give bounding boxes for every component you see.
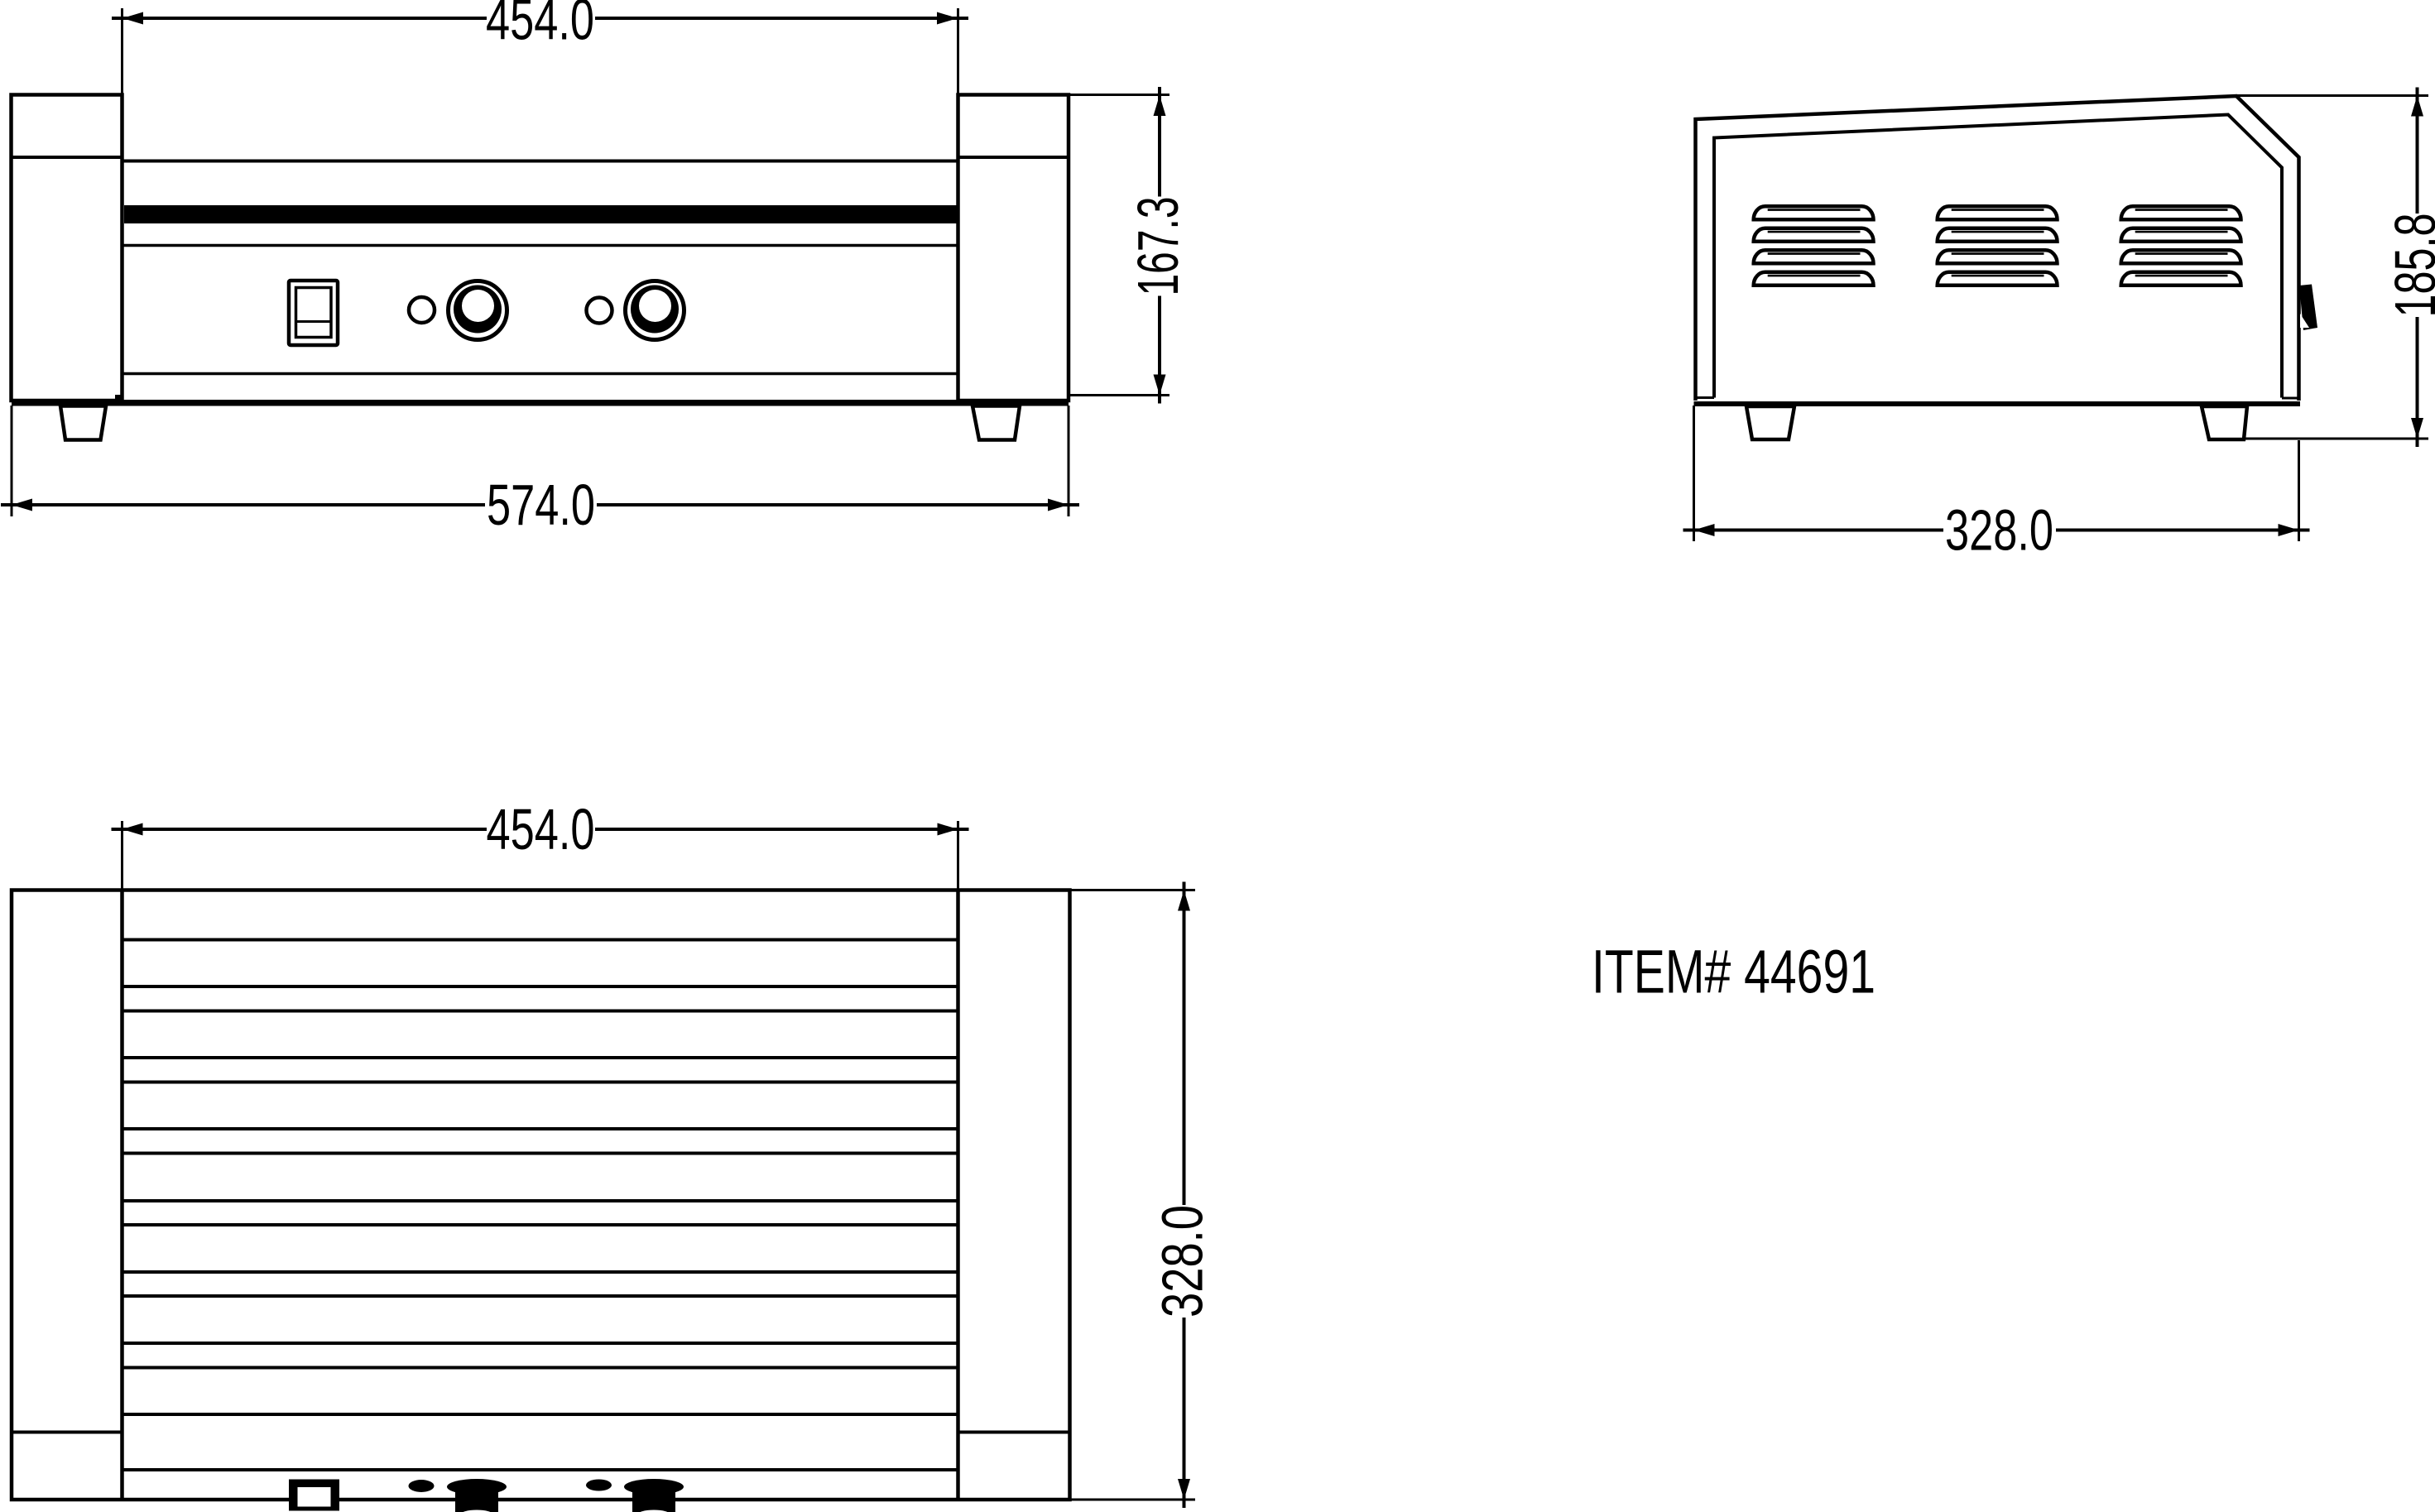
svg-text:574.0: 574.0 [487, 473, 595, 537]
svg-text:454.0: 454.0 [487, 797, 595, 862]
svg-text:ITEM# 44691: ITEM# 44691 [1592, 938, 1875, 1006]
svg-text:454.0: 454.0 [486, 0, 594, 52]
svg-text:185.8: 185.8 [2383, 214, 2435, 318]
svg-text:167.3: 167.3 [1126, 197, 1190, 296]
svg-text:328.0: 328.0 [1150, 1205, 1215, 1318]
svg-text:328.0: 328.0 [1945, 498, 2053, 563]
